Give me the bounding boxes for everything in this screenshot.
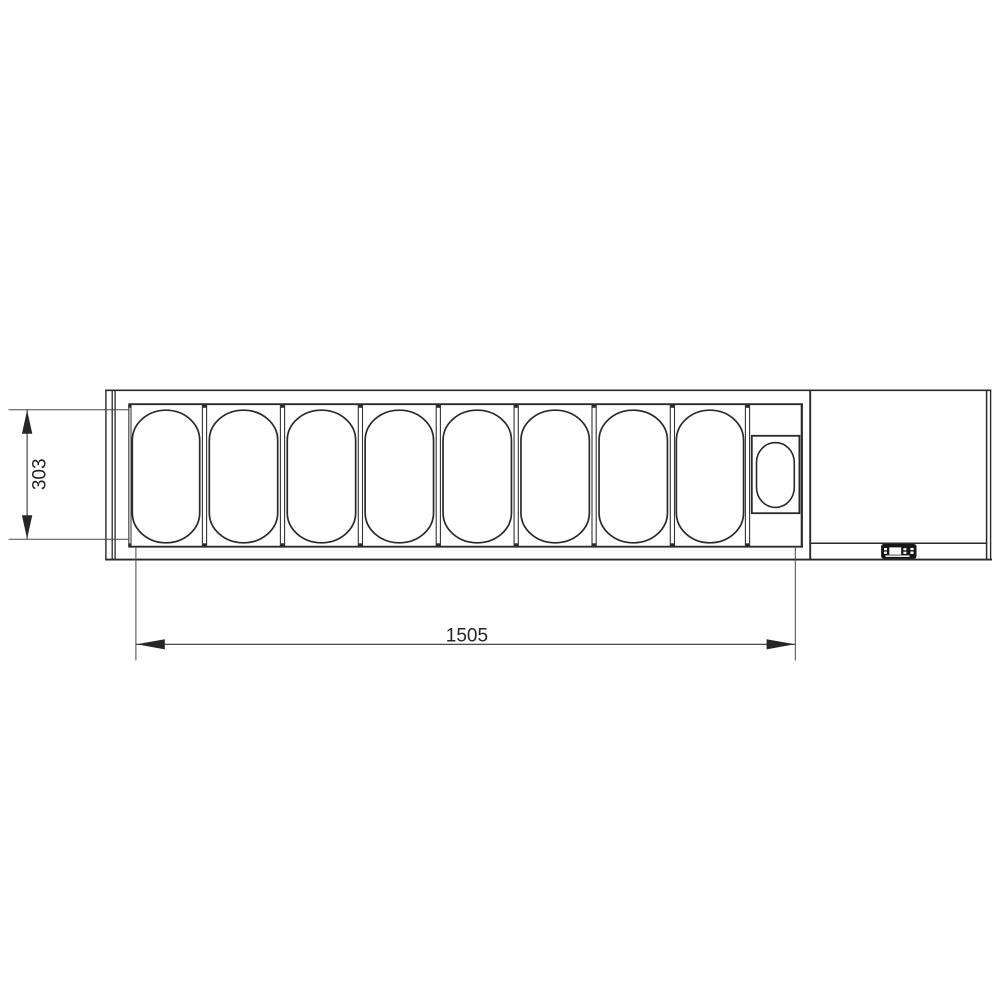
- svg-text:1505: 1505: [446, 625, 488, 646]
- svg-text:303: 303: [29, 458, 50, 490]
